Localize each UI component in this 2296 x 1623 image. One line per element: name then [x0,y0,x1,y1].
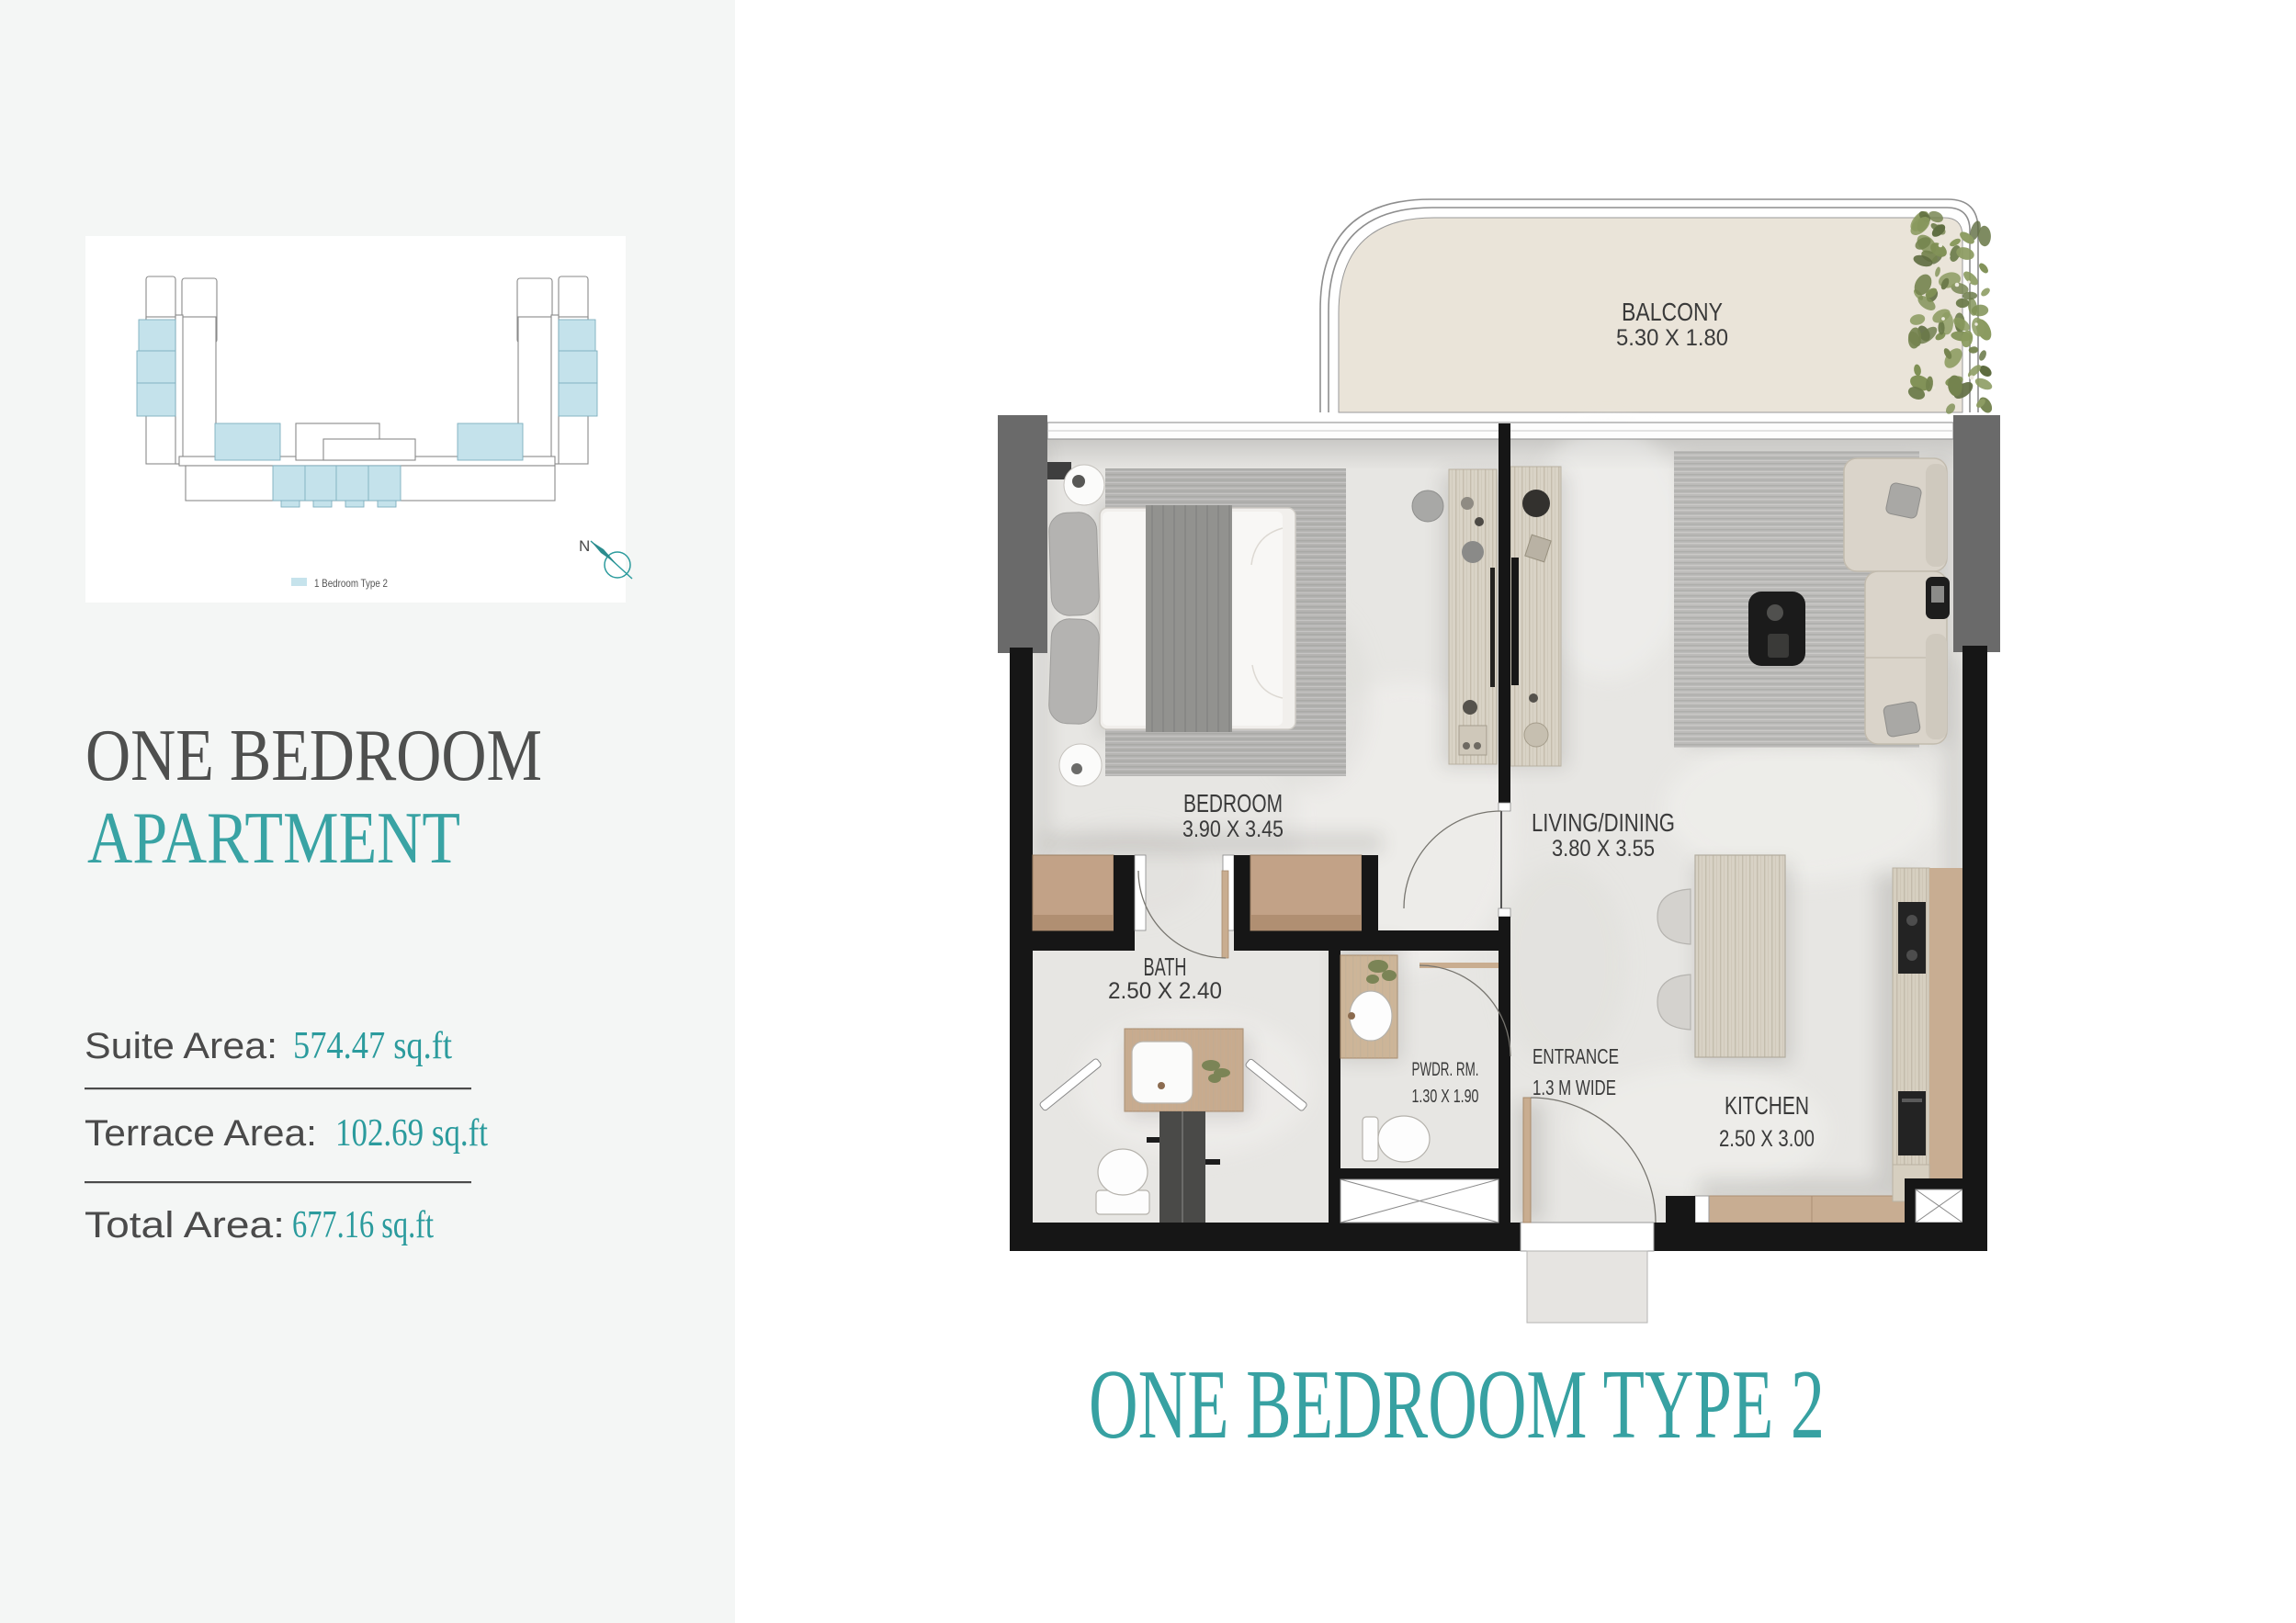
svg-text:1.3 M WIDE: 1.3 M WIDE [1533,1076,1616,1099]
svg-text:BATH: BATH [1144,952,1187,981]
svg-text:ENTRANCE: ENTRANCE [1533,1044,1619,1068]
svg-text:677.16 sq.ft: 677.16 sq.ft [292,1204,434,1246]
svg-text:2.50 X 3.00: 2.50 X 3.00 [1719,1126,1815,1152]
svg-text:BEDROOM: BEDROOM [1183,789,1283,817]
svg-text:3.80 X 3.55: 3.80 X 3.55 [1552,836,1655,862]
svg-text:KITCHEN: KITCHEN [1725,1091,1809,1120]
svg-text:Total Area:: Total Area: [85,1205,285,1245]
svg-text:102.69 sq.ft: 102.69 sq.ft [335,1112,488,1155]
svg-text:2.50 X 2.40: 2.50 X 2.40 [1108,978,1222,1004]
svg-text:Terrace Area:: Terrace Area: [85,1113,317,1154]
svg-text:ONE BEDROOM TYPE 2: ONE BEDROOM TYPE 2 [1089,1350,1825,1460]
svg-text:1.30 X 1.90: 1.30 X 1.90 [1412,1087,1479,1107]
svg-text:5.30 X 1.80: 5.30 X 1.80 [1616,325,1728,351]
svg-text:Suite Area:: Suite Area: [85,1026,277,1066]
svg-text:BALCONY: BALCONY [1622,298,1723,326]
svg-text:PWDR. RM.: PWDR. RM. [1412,1059,1479,1080]
svg-text:574.47 sq.ft: 574.47 sq.ft [293,1025,452,1067]
svg-text:LIVING/DINING: LIVING/DINING [1532,808,1675,837]
svg-text:1 Bedroom Type 2: 1 Bedroom Type 2 [314,577,388,590]
svg-text:ONE BEDROOM: ONE BEDROOM [85,714,542,796]
svg-text:N: N [579,537,590,555]
svg-text:3.90 X 3.45: 3.90 X 3.45 [1182,817,1284,842]
svg-text:APARTMENT: APARTMENT [87,796,460,879]
